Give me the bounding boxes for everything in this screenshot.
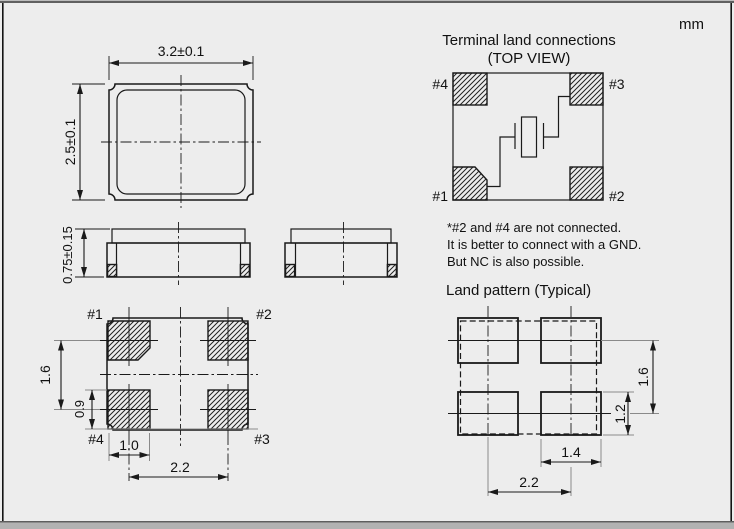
terminal-metallization-left bbox=[286, 265, 295, 277]
pin4-label: #4 bbox=[432, 76, 448, 92]
frame-bottom-strip bbox=[0, 523, 734, 529]
dimension-text: 1.6 bbox=[635, 367, 651, 387]
dimension-text: 1.0 bbox=[119, 437, 139, 453]
note-line-1: *#2 and #4 are not connected. bbox=[447, 220, 621, 235]
dimension-text: 0.9 bbox=[72, 400, 87, 418]
pin1-label: #1 bbox=[432, 188, 448, 204]
datasheet-drawing-page: mm 3.2±0.1 2.5±0.1 0.75±0.15 bbox=[0, 0, 734, 529]
pad-4 bbox=[453, 73, 487, 105]
technical-drawing-canvas: mm 3.2±0.1 2.5±0.1 0.75±0.15 bbox=[0, 0, 734, 529]
section-title: Terminal land connections bbox=[442, 32, 615, 49]
frame-top-highlight bbox=[0, 0, 734, 1]
pin1-label: #1 bbox=[87, 306, 103, 322]
terminal-metallization-right bbox=[387, 265, 396, 277]
pad-2 bbox=[570, 167, 603, 200]
dimension-text-thickness: 0.75±0.15 bbox=[60, 226, 75, 284]
frame-right-border bbox=[730, 3, 732, 521]
dimension-text: 1.6 bbox=[37, 365, 53, 385]
note-line-2: It is better to connect with a GND. bbox=[447, 237, 641, 252]
frame-bottom-edge bbox=[0, 521, 734, 523]
terminal-metallization-left bbox=[108, 265, 117, 277]
pad-3 bbox=[570, 73, 603, 105]
pin2-label: #2 bbox=[609, 188, 625, 204]
frame-top-edge bbox=[0, 1, 734, 3]
frame-left-border bbox=[2, 3, 4, 521]
pin2-label: #2 bbox=[256, 306, 272, 322]
pin3-label: #3 bbox=[254, 431, 270, 447]
pin4-label: #4 bbox=[88, 431, 104, 447]
dimension-text: 1.4 bbox=[561, 444, 581, 460]
section-subtitle: (TOP VIEW) bbox=[488, 50, 571, 67]
dimension-text: 2.2 bbox=[170, 459, 190, 475]
pin3-label: #3 bbox=[609, 76, 625, 92]
unit-label: mm bbox=[679, 16, 704, 33]
terminal-metallization-right bbox=[240, 265, 249, 277]
dimension-text: 1.2 bbox=[612, 404, 628, 424]
dimension-text-width: 3.2±0.1 bbox=[158, 43, 205, 59]
note-line-3: But NC is also possible. bbox=[447, 254, 584, 269]
section-title: Land pattern (Typical) bbox=[446, 282, 591, 299]
dimension-text: 2.2 bbox=[519, 474, 539, 490]
dimension-text-height: 2.5±0.1 bbox=[62, 118, 78, 165]
